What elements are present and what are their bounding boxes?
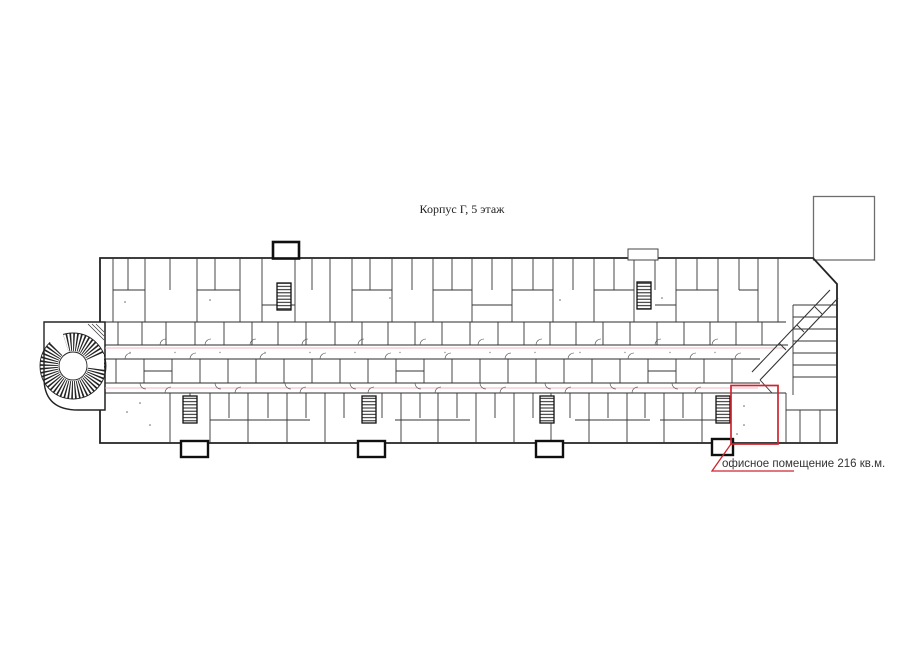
highlighted-room-outline	[731, 386, 778, 445]
floor-plan-canvas: Корпус Г, 5 этаж	[0, 0, 918, 649]
bottom-band-partitions	[170, 393, 778, 443]
staircase-icon	[277, 283, 291, 310]
diagonal-wing	[752, 290, 838, 443]
room-area-label: офисное помещение 216 кв.м.	[722, 458, 885, 470]
staircase-icon	[540, 396, 554, 423]
door-arcs	[125, 339, 741, 393]
spiral-ramp	[40, 322, 106, 410]
annex-outline	[814, 197, 875, 261]
plan-title: Корпус Г, 5 этаж	[420, 202, 506, 216]
band-walls	[105, 322, 788, 393]
inner-band-partitions	[118, 322, 762, 345]
staircase-icon	[183, 396, 197, 423]
staircase-icon	[362, 396, 376, 423]
staircase-icon	[716, 396, 730, 423]
entry-vestibules	[181, 242, 733, 457]
middle-band-partitions	[116, 359, 732, 383]
floor-plan-page: Корпус Г, 5 этаж	[0, 0, 918, 649]
corridor-guide-lines	[105, 348, 786, 388]
staircase-icon	[637, 282, 651, 309]
top-band-partitions	[113, 258, 778, 322]
column-dots	[124, 297, 745, 435]
